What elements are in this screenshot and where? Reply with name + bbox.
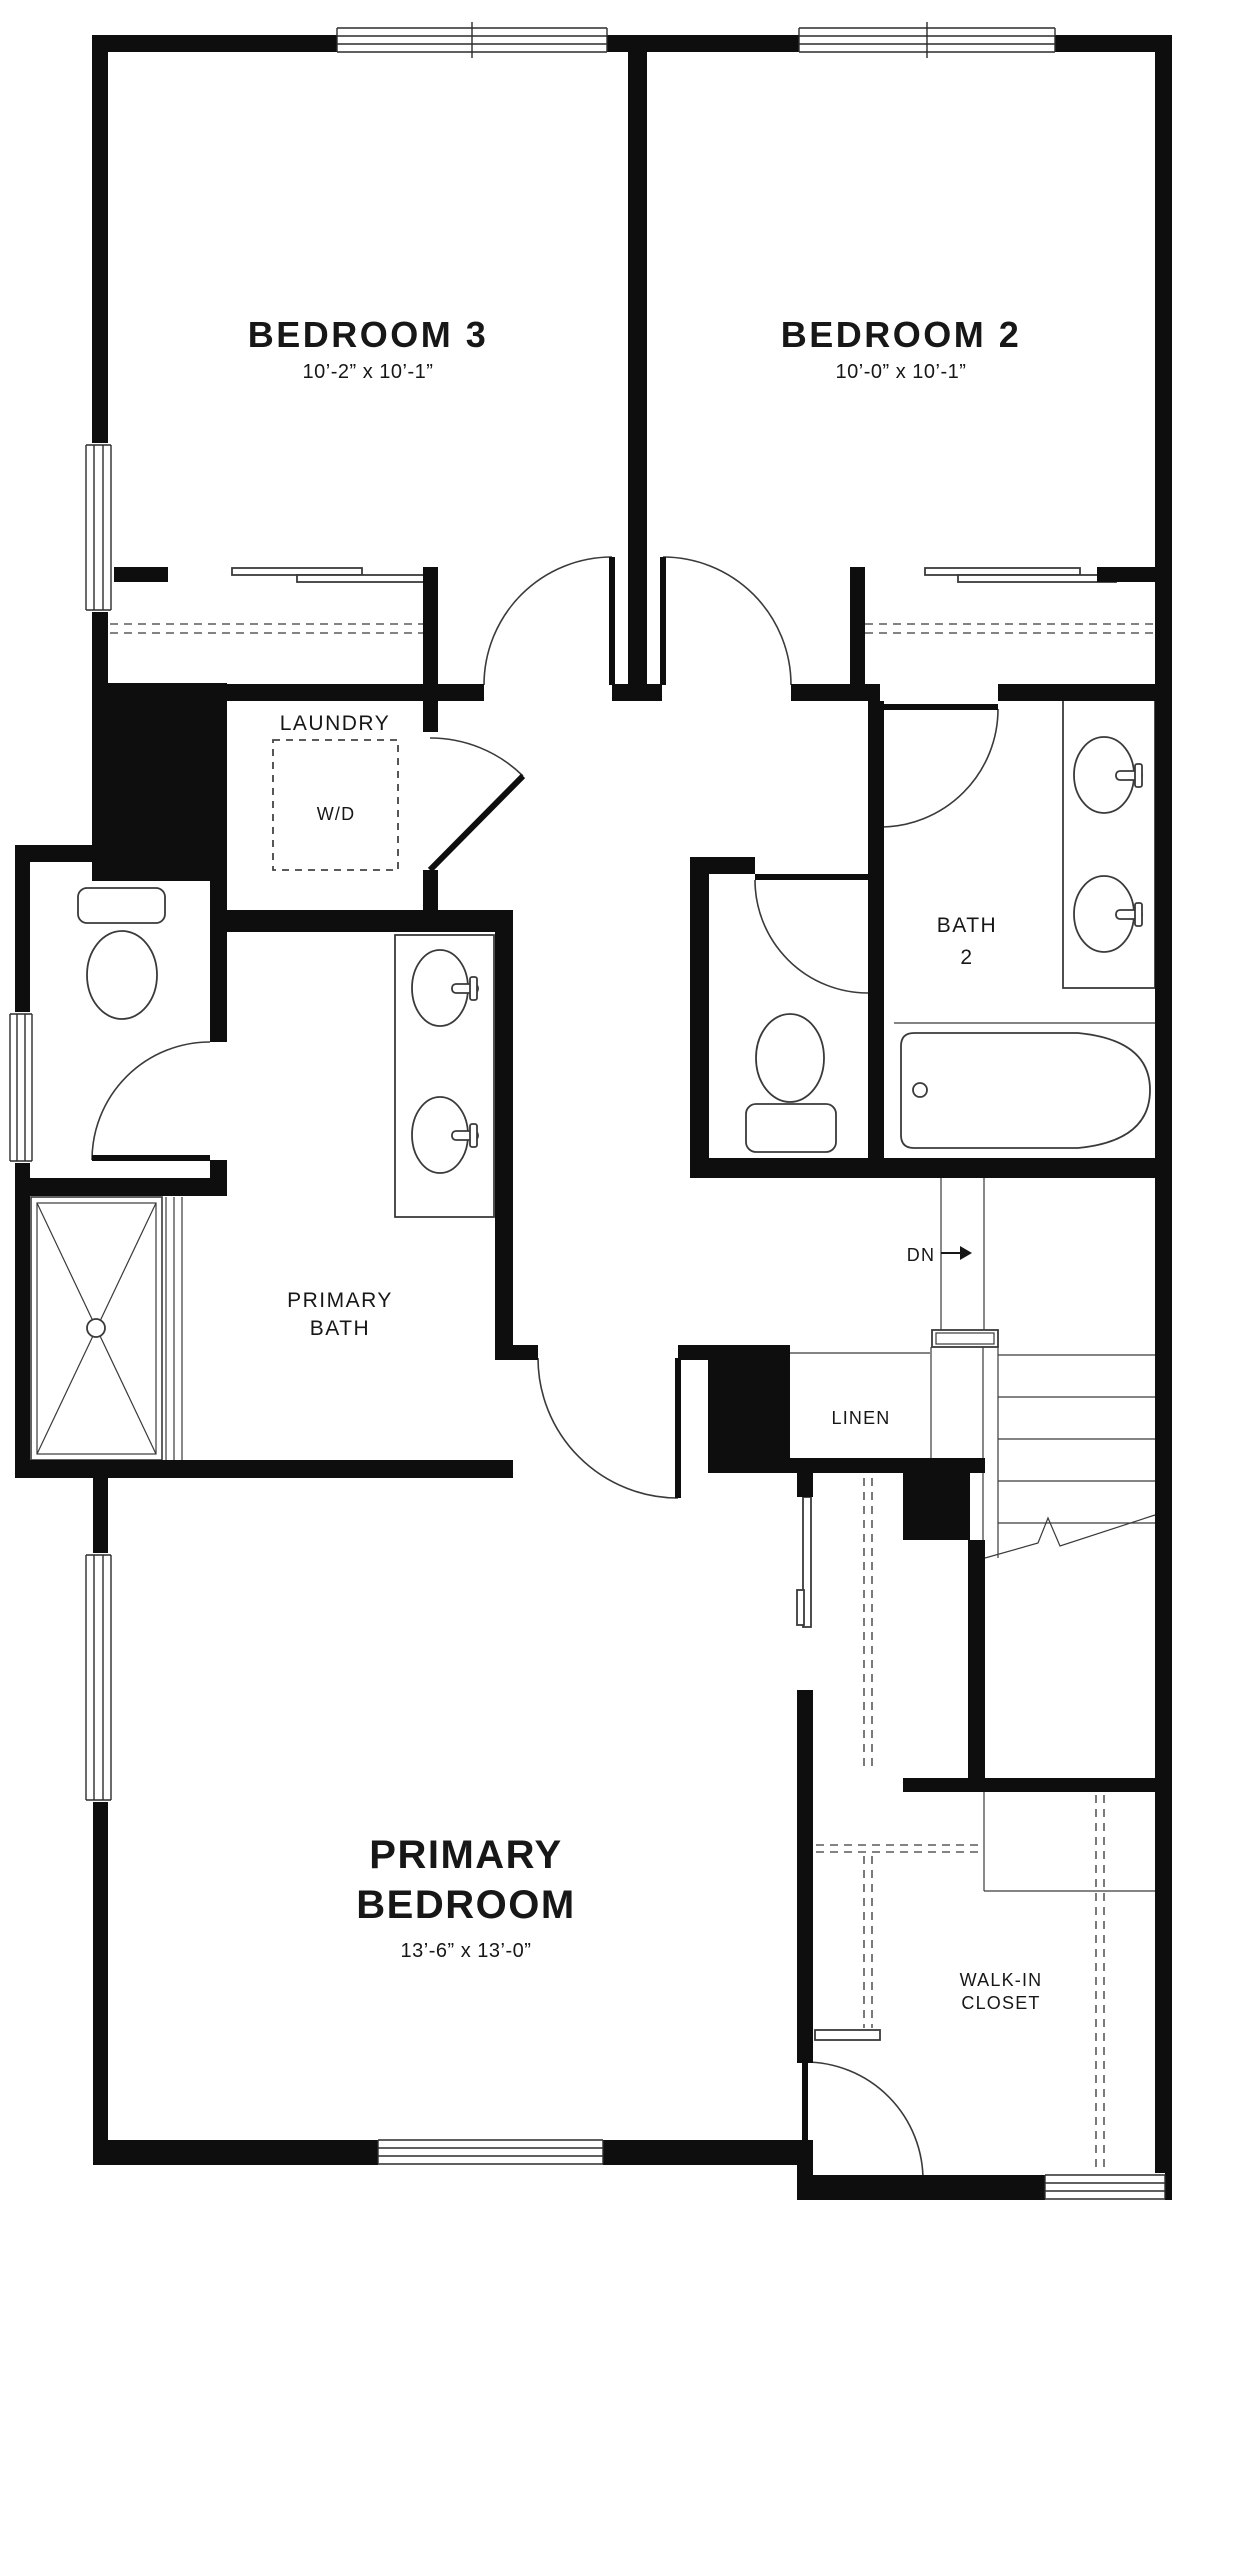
walk-in-closet-window: [1045, 2173, 1165, 2202]
primary-bedroom-bottom-window: [378, 2138, 603, 2167]
floor-plan-page: BEDROOM 3 10’-2” x 10’-1” BEDROOM 2 10’-…: [0, 0, 1247, 2560]
bedroom2-label: BEDROOM 2: [781, 314, 1022, 355]
bedroom3-window: [337, 22, 607, 58]
bath2-label-line2: 2: [960, 946, 973, 969]
bath2-vanity: [1063, 700, 1155, 988]
bedroom2-dims: 10’-0” x 10’-1”: [836, 361, 967, 383]
primary-bedroom-label-line1: PRIMARY: [369, 1833, 562, 1877]
linen-label: LINEN: [831, 1408, 890, 1428]
primary-bath-label-line2: BATH: [310, 1317, 370, 1340]
bath2-tub: [894, 1023, 1155, 1148]
bedroom3-side-window: [84, 443, 114, 612]
bedroom3-dims: 10’-2” x 10’-1”: [303, 361, 434, 383]
primary-bedroom-label-line2: BEDROOM: [356, 1883, 575, 1927]
primary-bath-label-line1: PRIMARY: [287, 1289, 393, 1312]
primary-bedroom-side-window: [84, 1553, 114, 1802]
dn-label: DN: [907, 1245, 935, 1265]
walk-in-closet-label-line1: WALK-IN: [960, 1970, 1043, 1990]
floor-plan-drawing: BEDROOM 3 10’-2” x 10’-1” BEDROOM 2 10’-…: [0, 0, 1247, 2560]
bedroom2-window: [799, 22, 1055, 58]
primary-bedroom-dims: 13’-6” x 13’-0”: [401, 1940, 532, 1962]
bedroom3-label: BEDROOM 3: [248, 314, 489, 355]
laundry-label: LAUNDRY: [280, 712, 390, 735]
washer-dryer-label: W/D: [317, 804, 356, 824]
walk-in-closet-label-line2: CLOSET: [961, 1993, 1040, 2013]
primary-vanity: [395, 935, 494, 1217]
bath-side-window: [8, 1012, 35, 1163]
bath2-label-line1: BATH: [937, 914, 997, 937]
